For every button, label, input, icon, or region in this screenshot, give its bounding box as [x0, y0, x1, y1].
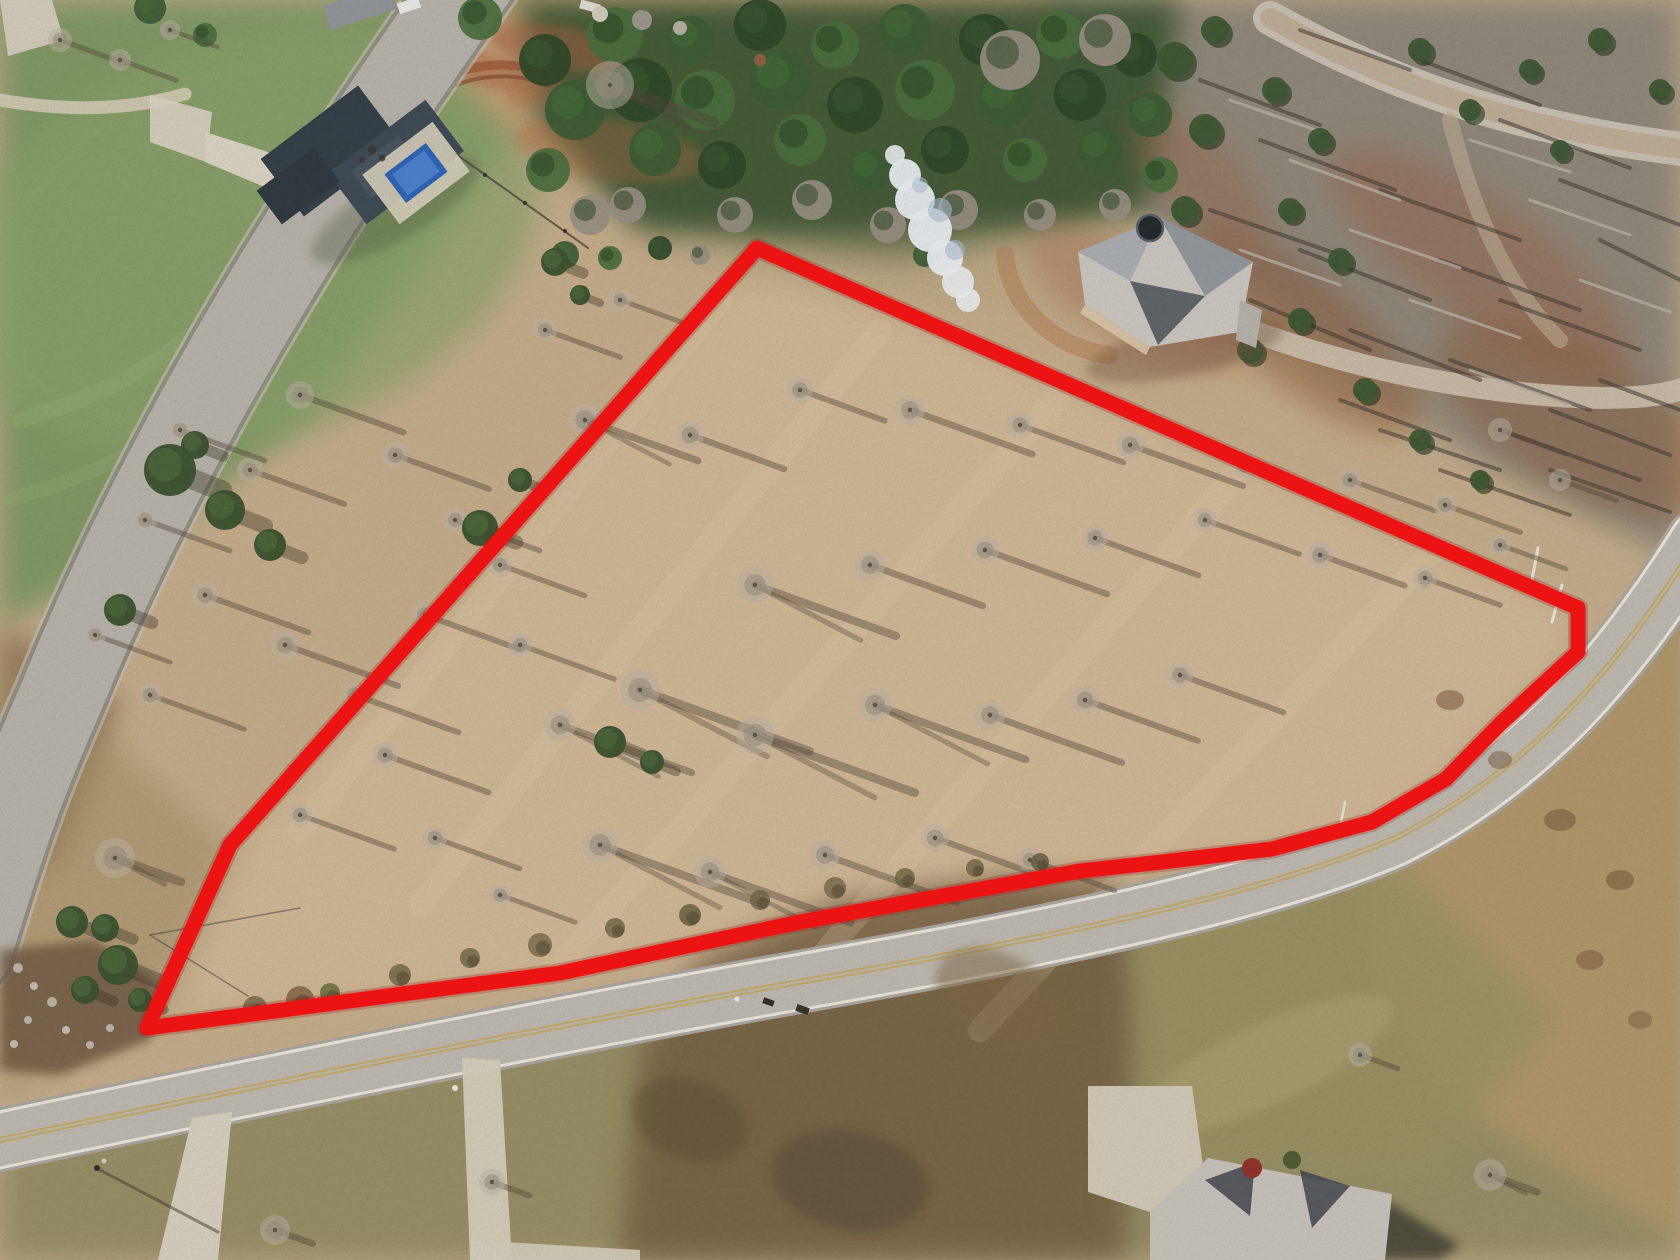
- aerial-photo-canvas: [0, 0, 1680, 1260]
- aerial-photo: [0, 0, 1680, 1260]
- photo-grain: [0, 0, 1680, 1260]
